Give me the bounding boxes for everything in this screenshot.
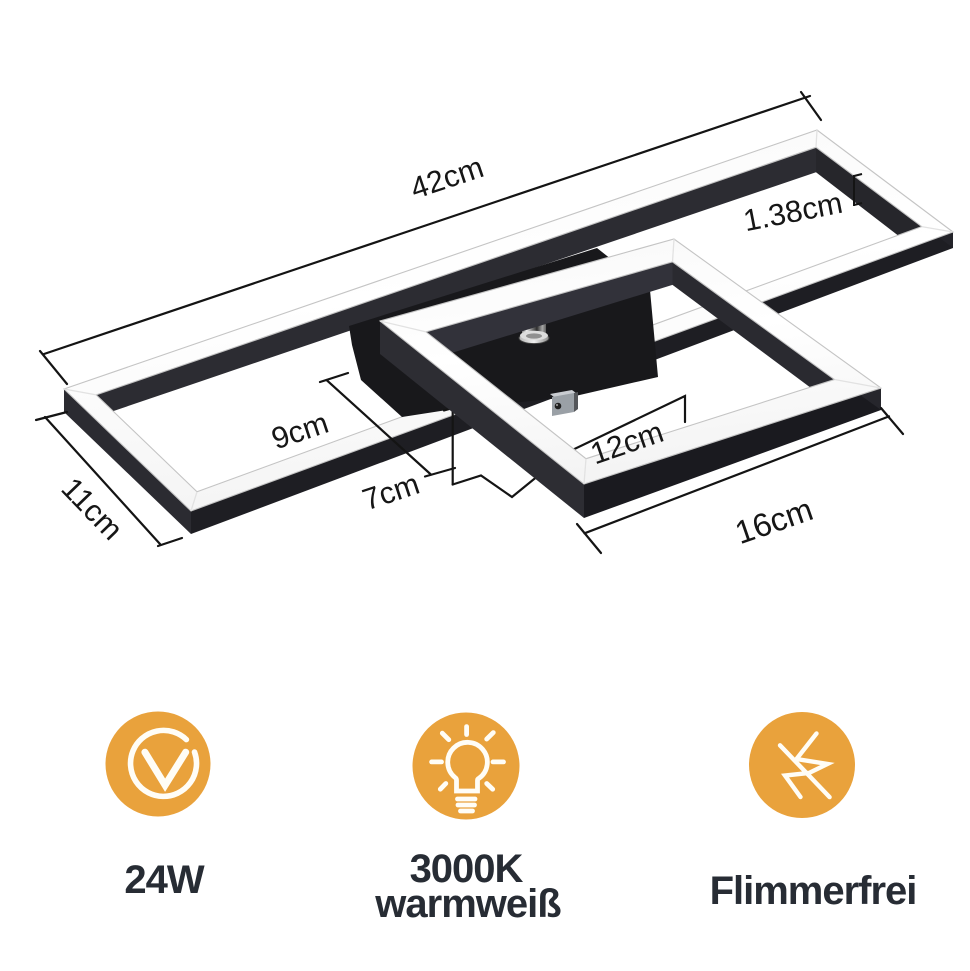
svg-text:warmweiß: warmweiß [374,882,561,926]
svg-text:Flimmerfrei: Flimmerfrei [710,869,917,913]
svg-text:24W: 24W [124,858,204,902]
